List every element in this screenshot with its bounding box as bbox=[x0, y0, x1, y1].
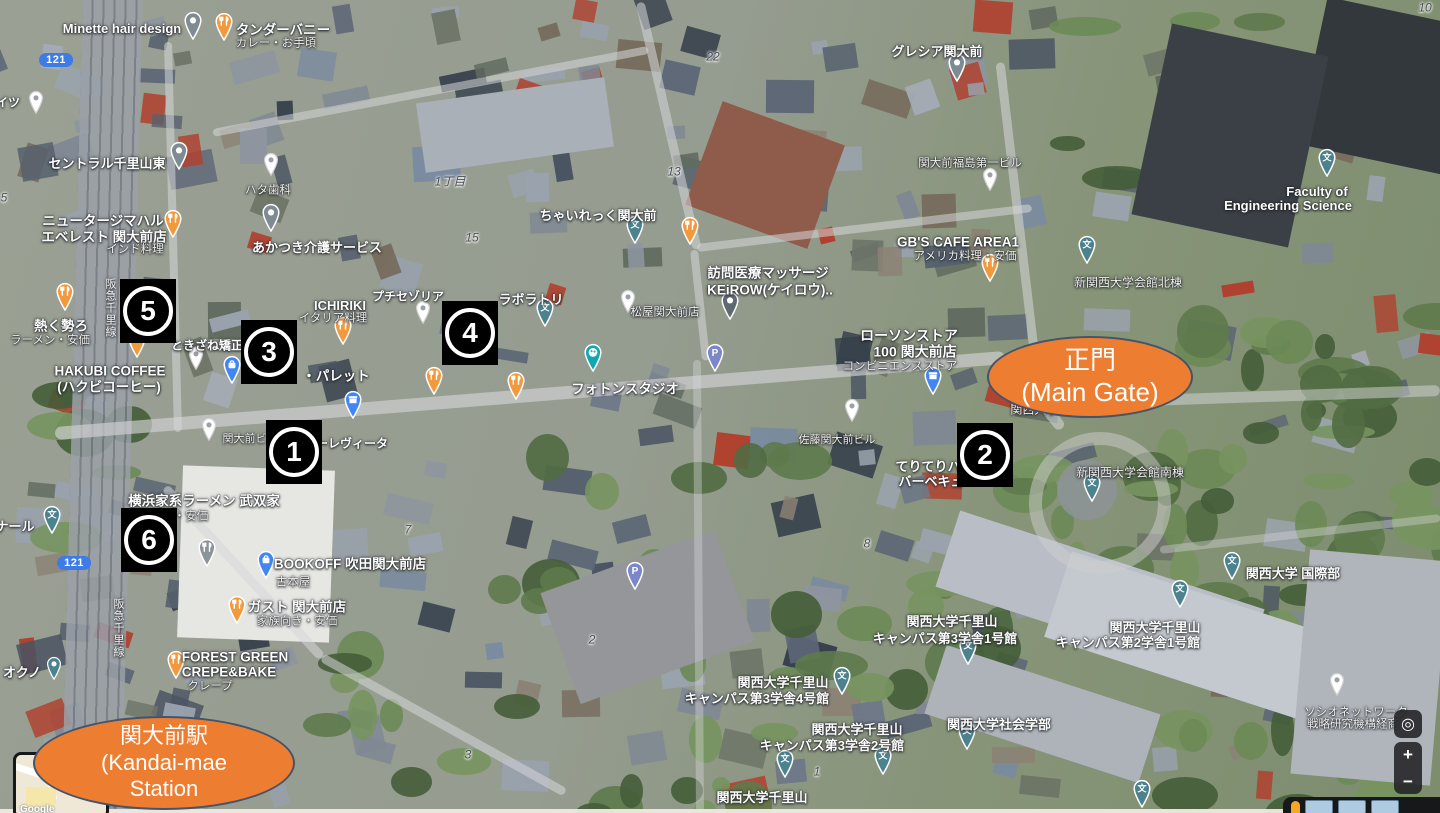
pin-grey-icon[interactable] bbox=[168, 140, 190, 175]
map-poi-label[interactable]: 佐藤関大前ビル bbox=[799, 434, 876, 446]
satellite-map[interactable]: PP文文文文文文文文文文文文文文 Minette hair designタンダー… bbox=[0, 0, 1440, 813]
annotation-station: 関大前駅(Kandai-maeStation bbox=[33, 716, 295, 810]
svg-text:文: 文 bbox=[779, 753, 790, 764]
map-poi-label[interactable]: ガスト 関大前店 bbox=[248, 601, 346, 616]
map-poi-label[interactable]: ちゃいれっく関大前 bbox=[539, 209, 656, 223]
map-poi-label[interactable]: イツ bbox=[0, 96, 20, 109]
number-marker-digit: 2 bbox=[960, 430, 1010, 480]
pin-food-icon[interactable] bbox=[213, 11, 235, 46]
map-poi-label[interactable]: グレシア関大前 bbox=[891, 45, 982, 59]
number-marker-digit: 6 bbox=[124, 515, 174, 565]
map-number-label: 15 bbox=[465, 231, 478, 244]
layer-thumbnail[interactable] bbox=[1338, 800, 1366, 813]
map-poi-label[interactable]: 訪問医療マッサージ bbox=[707, 267, 828, 282]
annotation-main-gate: 正門(Main Gate) bbox=[987, 336, 1193, 418]
map-poi-label[interactable]: 関西大学 国際部 bbox=[1246, 567, 1341, 581]
map-number-label: 1丁目 bbox=[435, 175, 466, 188]
map-poi-label[interactable]: 関西大学社会学部 bbox=[947, 718, 1051, 732]
map-poi-label[interactable]: (ハクビコーヒー) bbox=[57, 381, 161, 396]
map-poi-label[interactable]: 100 関大前店 bbox=[873, 344, 956, 359]
map-poi-label[interactable]: コンビニエンスストア bbox=[843, 361, 958, 374]
annotation-text: Station bbox=[35, 776, 293, 803]
map-poi-label[interactable]: 関西大学千里山 bbox=[1109, 621, 1200, 635]
map-poi-label[interactable]: Minette hair design bbox=[63, 22, 181, 36]
pegman-icon[interactable] bbox=[1291, 801, 1300, 813]
my-location-icon: ◎ bbox=[1401, 714, 1415, 734]
pin-bag-icon[interactable] bbox=[221, 354, 243, 389]
pin-food-icon[interactable] bbox=[505, 370, 527, 405]
number-marker-digit: 5 bbox=[123, 286, 173, 336]
pin-white-icon[interactable] bbox=[200, 416, 218, 446]
map-poi-label[interactable]: ハタ歯科 bbox=[245, 185, 291, 198]
map-poi-label[interactable]: ICHIRIKI bbox=[314, 299, 366, 313]
map-number-label: 5 bbox=[1, 191, 8, 204]
map-poi-label[interactable]: 古本屋 bbox=[276, 577, 311, 590]
map-poi-label[interactable]: キャンパス第3学舎2号館 bbox=[760, 739, 904, 753]
map-poi-label[interactable]: 新関西大学会館南棟 bbox=[1076, 466, 1184, 479]
number-marker-digit: 3 bbox=[244, 327, 294, 377]
map-number-label: 7 bbox=[405, 523, 412, 536]
route-shield: 121 bbox=[57, 556, 91, 570]
pin-white-icon[interactable] bbox=[27, 89, 45, 119]
pin-school-icon[interactable]: 文 bbox=[1221, 550, 1243, 585]
map-poi-label[interactable]: ナール bbox=[0, 520, 35, 534]
map-poi-label[interactable]: アメリカ料理・安価 bbox=[914, 251, 1017, 264]
map-poi-label[interactable]: 関西大学千里山 bbox=[906, 615, 997, 629]
pin-white-icon[interactable] bbox=[843, 397, 861, 427]
number-marker-2: 2 bbox=[957, 423, 1013, 487]
map-poi-label[interactable]: FOREST GREEN bbox=[182, 651, 289, 666]
zoom-out-button[interactable]: − bbox=[1394, 769, 1422, 794]
pin-food-icon[interactable] bbox=[679, 215, 701, 250]
map-poi-label[interactable]: ーレヴィータ bbox=[316, 437, 388, 450]
map-poi-label[interactable]: あかつき介護サービス bbox=[252, 241, 382, 255]
railway-label: 阪急千里線 bbox=[104, 278, 116, 338]
map-poi-label[interactable]: KEiROW(ケイロウ).. bbox=[707, 284, 833, 299]
railway-label: 阪急千里線 bbox=[112, 598, 124, 658]
map-poi-label[interactable]: ・安価 bbox=[174, 511, 209, 524]
map-poi-label[interactable]: CREPE&BAKE bbox=[182, 666, 277, 681]
pin-school-icon[interactable]: 文 bbox=[831, 665, 853, 700]
pin-conv-icon[interactable] bbox=[342, 389, 364, 424]
map-poi-label[interactable]: ソシオネットワーク bbox=[1304, 707, 1408, 720]
map-poi-label[interactable]: 関西大学千里山 bbox=[716, 791, 807, 805]
map-poi-label[interactable]: BOOKOFF 吹田関大前店 bbox=[274, 558, 426, 573]
pin-white-icon[interactable] bbox=[1328, 671, 1346, 701]
map-number-label: 1 bbox=[814, 765, 821, 778]
map-poi-label[interactable]: クレープ bbox=[187, 681, 232, 694]
map-poi-label[interactable]: タンダーバニー bbox=[236, 24, 330, 39]
map-number-label: 13 bbox=[667, 165, 680, 178]
map-poi-label[interactable]: フォトンスタジオ bbox=[571, 383, 679, 398]
pin-palette-icon[interactable] bbox=[582, 342, 604, 377]
pin-grey-icon[interactable] bbox=[260, 202, 282, 237]
map-poi-label[interactable]: キャンパス第3学舎1号館 bbox=[873, 632, 1017, 646]
pin-white-icon[interactable] bbox=[981, 166, 999, 196]
svg-text:文: 文 bbox=[1174, 583, 1185, 594]
pin-food-icon[interactable] bbox=[423, 365, 445, 400]
map-poi-label[interactable]: てりてりハ bbox=[895, 460, 960, 474]
map-number-label: 8 bbox=[864, 537, 871, 550]
pin-school-icon[interactable]: 文 bbox=[1316, 147, 1338, 182]
pin-school-icon[interactable]: 文 bbox=[1131, 778, 1153, 813]
layer-thumbnail[interactable] bbox=[1371, 800, 1399, 813]
map-poi-label[interactable]: 家族向き・安価 bbox=[257, 616, 338, 629]
zoom-in-button[interactable]: + bbox=[1394, 742, 1422, 767]
number-marker-3: 3 bbox=[241, 320, 297, 384]
map-poi-label[interactable]: ローソンストア bbox=[860, 328, 958, 343]
map-number-label: 3 bbox=[465, 748, 472, 761]
number-marker-1: 1 bbox=[266, 420, 322, 484]
map-poi-label[interactable]: キャンパス第2学舎1号館 bbox=[1056, 636, 1200, 650]
pin-white-icon[interactable] bbox=[414, 299, 432, 329]
map-number-label: 10 bbox=[1418, 1, 1431, 14]
map-poi-label[interactable]: ラーメン・安価 bbox=[10, 335, 90, 348]
map-poi-label[interactable]: イタリア料理 bbox=[299, 313, 368, 326]
screenshot-edge-strip bbox=[0, 809, 1440, 813]
svg-text:文: 文 bbox=[836, 670, 847, 681]
map-poi-label[interactable]: Engineering Science bbox=[1224, 199, 1352, 213]
annotation-text: (Main Gate) bbox=[989, 377, 1191, 409]
map-poi-label[interactable]: オクノ bbox=[3, 666, 41, 680]
svg-text:文: 文 bbox=[1081, 239, 1092, 250]
map-poi-label[interactable]: HAKUBI COFFEE bbox=[55, 365, 166, 380]
map-poi-label[interactable]: 関大前福島第一ビル bbox=[918, 158, 1022, 171]
pin-white-icon[interactable] bbox=[262, 151, 280, 181]
map-poi-label[interactable]: ・パレット bbox=[302, 370, 370, 385]
map-poi-label[interactable]: 新関西大学会館北棟 bbox=[1074, 276, 1182, 289]
number-marker-4: 4 bbox=[442, 301, 498, 365]
map-poi-label[interactable]: 関西大学千里山 bbox=[737, 676, 828, 690]
map-poi-label[interactable]: 戦略研究機構経商 bbox=[1307, 719, 1399, 732]
google-logo: Google bbox=[20, 804, 54, 813]
svg-text:文: 文 bbox=[46, 509, 57, 520]
map-number-label: 22 bbox=[706, 50, 719, 63]
pin-food-icon[interactable] bbox=[226, 594, 248, 629]
annotation-text: 正門 bbox=[989, 345, 1191, 377]
number-marker-digit: 4 bbox=[445, 308, 495, 358]
map-poi-label[interactable]: セントラル千里山東 bbox=[48, 157, 165, 171]
map-number-label: 2 bbox=[589, 633, 596, 646]
map-poi-label[interactable]: ラボラトリ bbox=[498, 293, 563, 307]
annotation-text: 関大前駅 bbox=[35, 723, 293, 750]
svg-text:文: 文 bbox=[1321, 152, 1332, 163]
pin-parking-icon[interactable]: P bbox=[704, 342, 726, 377]
pin-school-icon[interactable]: 文 bbox=[1169, 578, 1191, 613]
svg-text:P: P bbox=[632, 566, 639, 577]
annotation-text: (Kandai-mae bbox=[35, 750, 293, 777]
zoom-controls[interactable]: + − bbox=[1394, 742, 1422, 794]
map-poi-label[interactable]: 熱く勢ろ bbox=[34, 320, 88, 335]
map-poi-label[interactable]: キャンパス第3学舎4号館 bbox=[685, 692, 829, 706]
pin-school-icon[interactable]: 文 bbox=[41, 504, 63, 539]
map-poi-label[interactable]: GB'S CAFE AREA1 bbox=[897, 236, 1019, 251]
svg-text:文: 文 bbox=[1136, 783, 1147, 794]
number-marker-6: 6 bbox=[121, 508, 177, 572]
map-poi-label[interactable]: 関西大学千里山 bbox=[811, 723, 902, 737]
map-poi-label[interactable]: 松屋関大前店 bbox=[631, 307, 700, 320]
my-location-button[interactable]: ◎ bbox=[1394, 710, 1422, 738]
map-poi-label[interactable]: ニュータージマハル bbox=[42, 215, 163, 230]
pin-parking-icon[interactable]: P bbox=[624, 560, 646, 595]
map-poi-label[interactable]: インド料理 bbox=[106, 244, 164, 257]
map-poi-label[interactable]: プチセゾリア bbox=[372, 290, 444, 303]
number-marker-digit: 1 bbox=[269, 427, 319, 477]
layer-thumbnail[interactable] bbox=[1305, 800, 1333, 813]
svg-text:文: 文 bbox=[1226, 555, 1237, 566]
pin-school-icon[interactable]: 文 bbox=[1076, 234, 1098, 269]
route-shield: 121 bbox=[39, 53, 73, 67]
number-marker-5: 5 bbox=[120, 279, 176, 343]
pin-tealdot-icon[interactable] bbox=[45, 655, 63, 685]
map-poi-label[interactable]: バーベキュ bbox=[898, 475, 963, 489]
pin-food-icon[interactable] bbox=[54, 281, 76, 316]
bottom-toolbar[interactable] bbox=[1283, 797, 1440, 813]
svg-text:P: P bbox=[712, 348, 719, 359]
map-poi-label[interactable]: カレー・お手頃 bbox=[236, 38, 317, 51]
pin-grey-icon[interactable] bbox=[182, 10, 204, 45]
pin-greyfood-icon[interactable] bbox=[196, 537, 218, 572]
pin-school-icon[interactable]: 文 bbox=[774, 748, 796, 783]
